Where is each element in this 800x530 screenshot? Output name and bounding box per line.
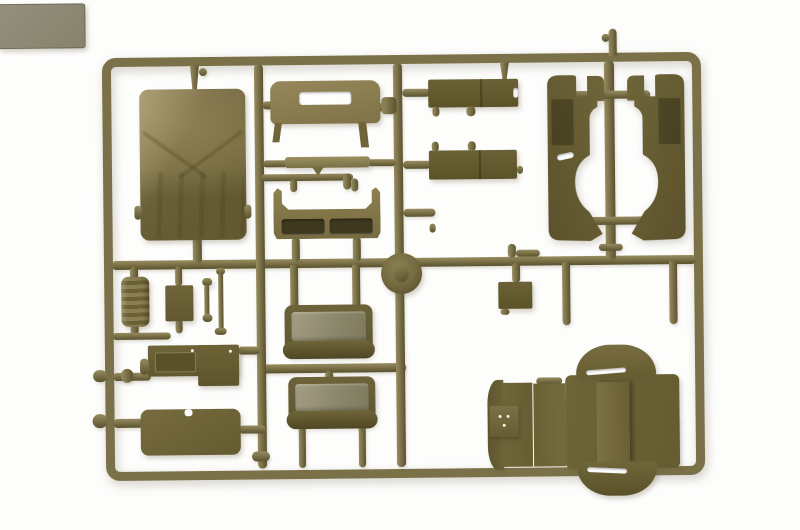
subrunner-strip	[261, 173, 353, 181]
subrunner-drop	[343, 174, 351, 190]
cowl-rod-b	[353, 236, 361, 261]
part-side-panel-right	[624, 70, 690, 247]
canvas-folds	[142, 172, 245, 239]
linkage-rod-b-foot	[215, 328, 227, 335]
sprue-gate-left-a	[93, 370, 107, 382]
linkage-rod-b	[218, 273, 224, 331]
conn-lower-panel-right	[239, 425, 266, 433]
lower-panel-notch	[184, 409, 192, 416]
conn-strip-right	[368, 159, 396, 166]
photo-stage	[0, 0, 800, 530]
cowl-opening-right	[330, 218, 373, 234]
dashboard-right-section	[198, 345, 239, 386]
small-box-stub	[512, 263, 520, 283]
box-b-tab	[517, 166, 523, 174]
sprue	[0, 0, 800, 530]
cab-bracket-hole-1	[499, 415, 502, 418]
seat-b-front-roll	[287, 410, 378, 429]
cab-hood	[596, 382, 630, 463]
canvas-tab-left	[134, 206, 141, 220]
floor-panel-bump	[430, 224, 436, 233]
conn-box-a	[402, 89, 430, 97]
part-bench-seat-a	[284, 304, 373, 357]
cab-fender-bottom-slot	[587, 467, 627, 474]
cab-fender-top-slot	[586, 367, 626, 375]
seat-rod-top-a	[290, 265, 298, 309]
small-box-foot	[500, 309, 509, 315]
seat-a-front-roll	[283, 340, 375, 359]
box-b-post-2	[468, 141, 476, 151]
part-header-strip	[285, 156, 370, 168]
box-b-seam	[479, 150, 481, 179]
conn-dashboard-bump	[121, 369, 133, 383]
conn-box-b	[403, 161, 431, 169]
part-lower-panel	[141, 409, 241, 456]
part-small-box	[498, 282, 532, 309]
part-floor-panel	[0, 3, 86, 49]
part-stowage-box-b	[429, 150, 517, 180]
box-b-post-1	[432, 142, 439, 152]
dashboard-hole-a	[191, 349, 194, 352]
sprue-gate-top	[609, 29, 617, 56]
linkage-rod-a-cap-bottom	[203, 314, 213, 322]
gate-floor-panel-bar	[516, 250, 540, 257]
seat-a-cushion	[291, 311, 365, 341]
plate-stub-bottom	[176, 319, 183, 333]
cowl-hanger-b	[351, 178, 358, 191]
subrunner-left	[113, 332, 171, 340]
gate-canvas-tab	[199, 68, 207, 76]
dashboard-instrument-inset	[155, 352, 196, 372]
part-canister	[121, 277, 150, 327]
conn-lower-panel-left	[114, 419, 144, 428]
box-a-foot-1	[432, 107, 439, 117]
sprue-gate-top-tab	[602, 34, 610, 42]
part-canvas-tilt	[139, 89, 247, 241]
seat-rod-bottom-a	[299, 425, 306, 468]
roof-disc-hub	[394, 265, 409, 282]
cab-bracket-hole-2	[507, 415, 510, 418]
conn-floor-panel	[403, 209, 435, 217]
part-side-panel-left	[543, 71, 609, 248]
dashboard-hole-b	[229, 350, 232, 353]
part-roof-disc	[381, 253, 422, 294]
cowl-opening-left	[282, 219, 325, 235]
plate-stub-top	[175, 266, 182, 286]
seat-rod-bottom-b	[359, 424, 366, 467]
part-small-plate	[165, 285, 193, 321]
linkage-rod-a	[204, 285, 209, 316]
part-rear-panel	[270, 80, 380, 124]
dashboard-tab-left	[140, 359, 149, 375]
cab-bracket-hole-3	[503, 424, 506, 427]
conn-rear-panel-block	[381, 97, 396, 114]
runner-foot	[252, 451, 270, 461]
sprue-gate-left-b	[93, 414, 108, 428]
cab-rod-top-right	[669, 261, 678, 324]
cab-fender-bottom	[577, 461, 657, 496]
cab-rod-top-left	[562, 262, 571, 325]
cowl-hanger-a	[290, 179, 297, 192]
box-a-seam	[480, 79, 482, 107]
box-a-notch	[513, 88, 518, 98]
part-stowage-box-a	[428, 79, 518, 108]
conn-dashboard-right	[238, 346, 260, 354]
seat-b-cushion	[295, 383, 368, 411]
box-a-foot-2	[466, 106, 475, 116]
canvas-tab-right	[244, 205, 251, 219]
cab-bracket	[489, 406, 518, 437]
rear-panel-window-cutout	[299, 92, 351, 106]
cab-step	[533, 383, 566, 466]
gate-floor-panel-bottom	[508, 244, 516, 258]
cowl-rod-a	[292, 237, 300, 262]
part-bench-seat-b	[288, 376, 376, 427]
seat-rod-top-b	[352, 264, 360, 308]
